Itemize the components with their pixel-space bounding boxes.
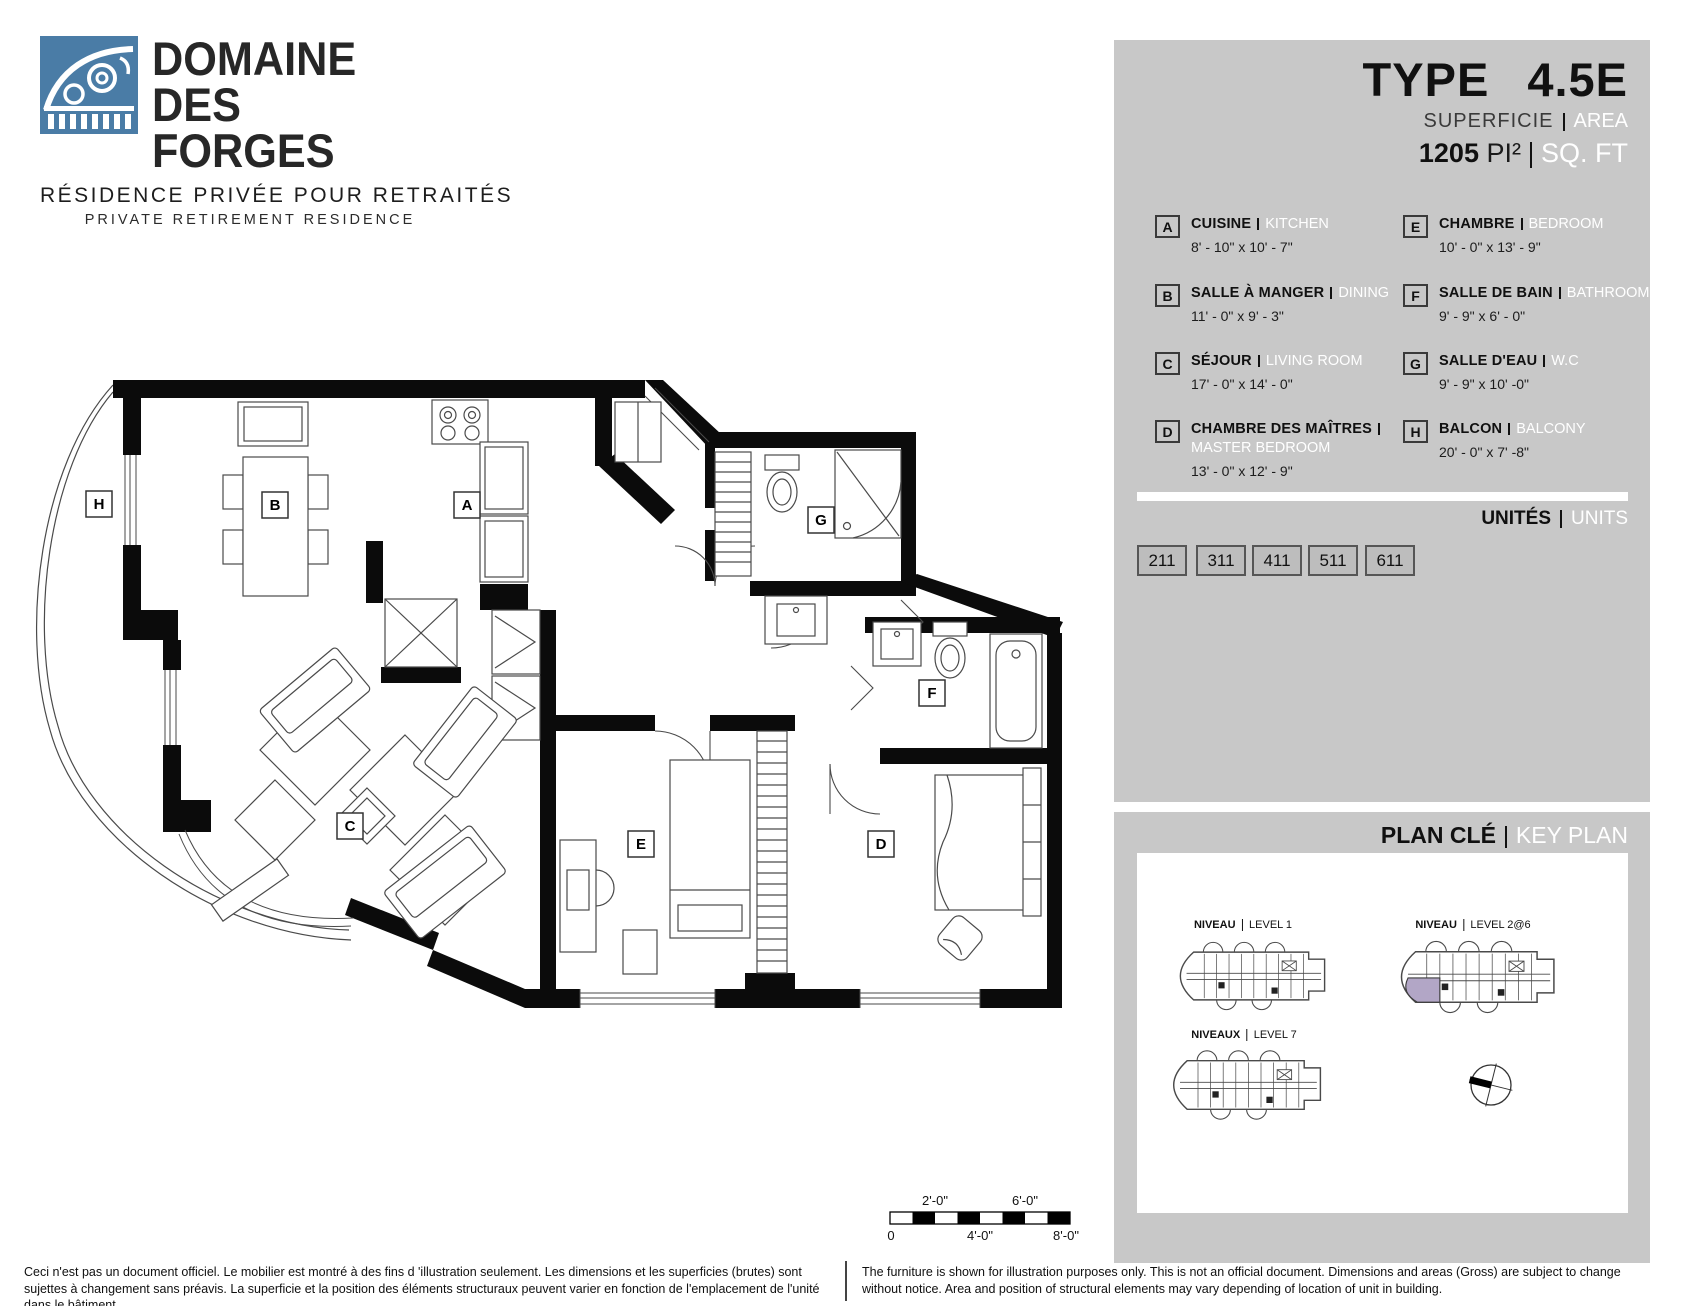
legend-en: LIVING ROOM [1266,353,1363,369]
legend-dim: 9' - 9" x 6' - 0" [1439,308,1654,324]
level-label-fr: NIVEAUX [1191,1029,1240,1041]
bed-d [935,768,1041,916]
vanity-g [765,596,827,644]
building-footprint-level2at6 [1380,936,1567,1018]
legend-dim: 11' - 0" x 9' - 3" [1191,308,1403,324]
level-label-fr: NIVEAU [1194,919,1236,931]
legend-fr: CHAMBRE DES MAÎTRES [1191,421,1372,437]
building-footprint-level7 [1153,1046,1333,1124]
logo-title: DOMAINE DES FORGES [152,36,435,174]
area-line: 1205 PI²SQ. FT [1419,138,1628,169]
legend-fr: SALLE D'EAU [1439,353,1537,369]
scale-top-2: 6'-0" [1012,1193,1038,1208]
legend-en: W.C [1551,353,1578,369]
pantry-closet [385,599,457,667]
linen-closet [715,452,751,576]
legend-en: DINING [1338,285,1389,301]
room-tag-G: G [815,512,827,529]
legend-item-living: C SÉJOURLIVING ROOM 17' - 0" x 14' - 0" [1155,352,1403,392]
chair-d [935,913,986,964]
kitchen-counter [480,516,528,582]
key-plan-title: PLAN CLÉKEY PLAN [1381,822,1628,849]
dining-table [223,457,328,596]
area-unit-en: SQ. FT [1541,138,1628,168]
legend-item-master-bedroom: D CHAMBRE DES MAÎTRESMASTER BEDROOM 13' … [1155,420,1403,479]
legend-en: MASTER BEDROOM [1191,440,1330,456]
floor-plan-drawing: H B A G F C E D [15,370,1075,1020]
logo-subtitle-fr: RÉSIDENCE PRIVÉE POUR RETRAITÉS [40,184,460,208]
level-label-fr: NIVEAU [1415,919,1457,931]
legend-key-A: A [1155,215,1180,238]
legend-key-B: B [1155,284,1180,307]
footer-divider [845,1261,847,1301]
entry-cabinet [615,402,661,462]
legend-en: BALCONY [1516,421,1585,437]
level-label-en: LEVEL 1 [1249,919,1292,931]
unit-number-411: 411 [1252,545,1302,576]
floorplan-page: DOMAINE DES FORGES RÉSIDENCE PRIVÉE POUR… [0,0,1690,1306]
logo-subtitle-en: PRIVATE RETIREMENT RESIDENCE [40,212,460,228]
legend-dim: 20' - 0" x 7' -8" [1439,444,1654,460]
superficie-label: SUPERFICIE [1424,110,1554,132]
scale-bottom-4: 4'-0" [967,1228,993,1243]
unit-number-511: 511 [1308,545,1358,576]
level-label-1: NIVEAULEVEL 1 [1194,919,1292,931]
level-label-en: LEVEL 2@6 [1470,919,1530,931]
unit-number-611: 611 [1365,545,1415,576]
bathtub [990,634,1042,748]
scale-bottom-8: 8'-0" [1053,1228,1079,1243]
scale-top-1: 2'-0" [922,1193,948,1208]
area-value: 1205 [1419,138,1479,168]
stove [432,400,488,444]
toilet-g [765,455,799,512]
room-tag-E: E [636,836,646,853]
legend-item-wc: G SALLE D'EAUW.C 9' - 9" x 10' -0" [1403,352,1654,392]
scale-bottom-0: 0 [887,1228,894,1243]
info-panel: TYPE4.5E SUPERFICIEAREA 1205 PI²SQ. FT A… [1114,40,1650,802]
units-label-en: UNITS [1571,508,1628,529]
room-tag-F: F [927,685,936,702]
legend-item-dining: B SALLE À MANGERDINING 11' - 0" x 9' - 3… [1155,284,1403,324]
legend-fr: BALCON [1439,421,1502,437]
closet-e-d [757,731,787,973]
key-plan-title-fr: PLAN CLÉ [1381,822,1496,848]
room-tag-H: H [94,496,105,513]
units-label: UNITÉSUNITS [1481,508,1628,530]
logo: DOMAINE DES FORGES RÉSIDENCE PRIVÉE POUR… [40,36,460,228]
toilet-f [933,622,967,678]
level-label-2at6: NIVEAULEVEL 2@6 [1415,919,1530,931]
legend-key-C: C [1155,352,1180,375]
sink-f [873,622,921,666]
tv-console [211,859,288,921]
legend-fr: CHAMBRE [1439,216,1515,232]
type-value: 4.5E [1527,53,1628,106]
legend-dim: 8' - 10" x 10' - 7" [1191,239,1403,255]
logo-title-line1: DOMAINE [152,36,435,82]
unit-number-211: 211 [1137,545,1187,576]
unit-type-title: TYPE4.5E [1363,52,1628,107]
bed-e [670,760,750,938]
key-plan-canvas: NIVEAULEVEL 1 NIVEAULEVEL 2@6 NIVEAUXLEV… [1137,853,1628,1213]
area-label: AREA [1574,110,1628,132]
legend-fr: SALLE DE BAIN [1439,285,1553,301]
dining-sideboard [238,402,308,446]
logo-mark-icon [40,36,138,134]
building-footprint-level1 [1160,936,1337,1016]
legend-key-D: D [1155,420,1180,443]
key-plan-panel: PLAN CLÉKEY PLAN [1114,812,1650,1263]
superficie-line: SUPERFICIEAREA [1424,110,1629,133]
legend-key-F: F [1403,284,1428,307]
room-tag-C: C [345,818,356,835]
legend-fr: SÉJOUR [1191,353,1252,369]
units-divider [1137,492,1628,501]
legend-dim: 9' - 9" x 10' -0" [1439,376,1654,392]
legend-item-bathroom: F SALLE DE BAINBATHROOM 9' - 9" x 6' - 0… [1403,284,1654,324]
disclaimer-en: The furniture is shown for illustration … [862,1264,1662,1297]
legend-key-H: H [1403,420,1428,443]
legend-fr: SALLE À MANGER [1191,285,1324,301]
fridge [480,442,528,514]
legend-key-G: G [1403,352,1428,375]
legend-dim: 13' - 0" x 12' - 9" [1191,463,1403,479]
legend-en: BATHROOM [1567,285,1650,301]
key-plan-title-en: KEY PLAN [1516,822,1628,848]
level-label-en: LEVEL 7 [1254,1029,1297,1041]
legend-dim: 17' - 0" x 14' - 0" [1191,376,1403,392]
legend-key-E: E [1403,215,1428,238]
scale-bar: 2'-0" 6'-0" 0 4'-0" 8'-0" [880,1192,1080,1248]
room-tag-B: B [270,497,281,514]
area-unit-fr: PI² [1486,138,1521,168]
level-label-7: NIVEAUXLEVEL 7 [1191,1029,1296,1041]
disclaimer-fr: Ceci n'est pas un document officiel. Le … [24,1264,834,1306]
desk-e [560,840,614,952]
unit-number-311: 311 [1196,545,1246,576]
legend-item-kitchen: A CUISINEKITCHEN 8' - 10" x 10' - 7" [1155,215,1403,255]
legend-item-bedroom: E CHAMBREBEDROOM 10' - 0" x 13' - 9" [1403,215,1654,255]
compass-icon [1466,1060,1516,1110]
type-label: TYPE [1363,53,1490,106]
logo-title-line2: DES FORGES [152,82,435,174]
nightstand-e [623,930,657,974]
legend-item-balcony: H BALCONBALCONY 20' - 0" x 7' -8" [1403,420,1654,460]
legend-dim: 10' - 0" x 13' - 9" [1439,239,1654,255]
shower [835,450,901,538]
legend-en: BEDROOM [1529,216,1604,232]
legend-en: KITCHEN [1265,216,1329,232]
legend-fr: CUISINE [1191,216,1251,232]
wrought-iron-icon [40,36,138,134]
room-tag-D: D [876,836,887,853]
room-tag-A: A [462,497,473,514]
units-label-fr: UNITÉS [1481,508,1551,529]
